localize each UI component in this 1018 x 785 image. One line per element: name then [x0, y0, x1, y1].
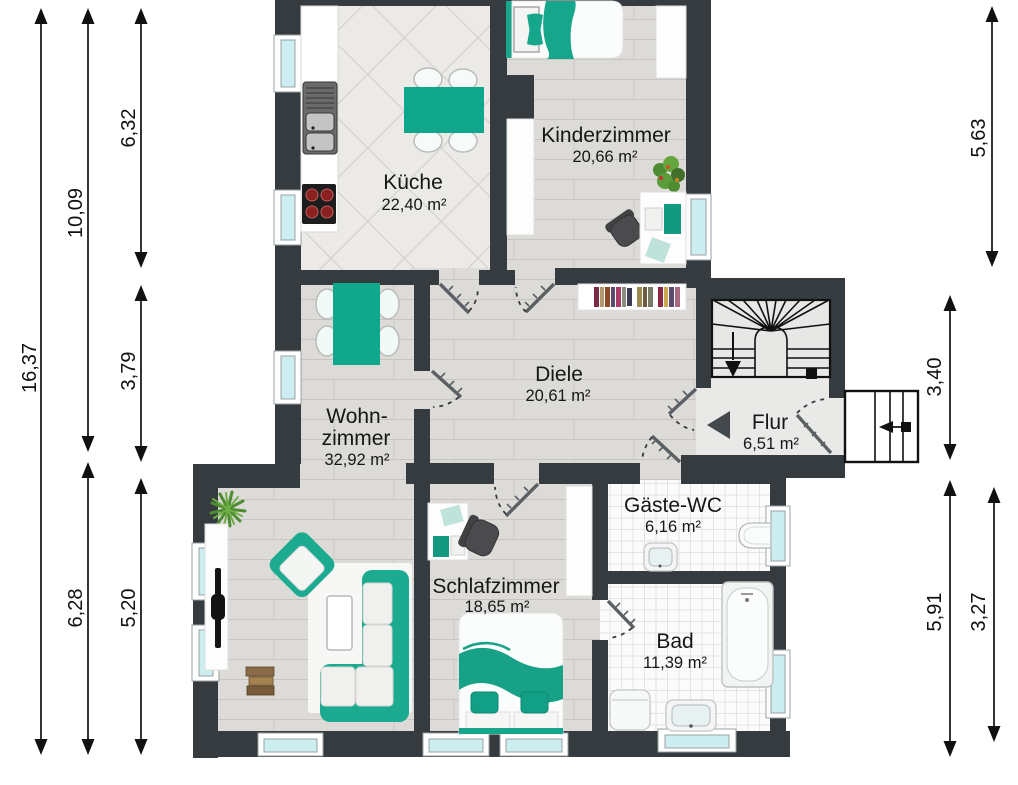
svg-text:6,28: 6,28 — [65, 589, 87, 628]
svg-text:5,20: 5,20 — [118, 589, 140, 628]
svg-text:Wohn-: Wohn- — [326, 405, 387, 428]
svg-text:3,27: 3,27 — [968, 593, 990, 632]
svg-text:22,40 m²: 22,40 m² — [381, 196, 447, 214]
svg-text:Gäste-WC: Gäste-WC — [624, 494, 722, 517]
svg-text:3,40: 3,40 — [924, 358, 946, 397]
svg-text:6,32: 6,32 — [118, 109, 140, 148]
svg-text:5,63: 5,63 — [968, 119, 990, 158]
svg-text:3,79: 3,79 — [118, 352, 140, 391]
svg-text:6,16 m²: 6,16 m² — [645, 518, 701, 536]
svg-text:zimmer: zimmer — [322, 427, 391, 450]
svg-text:Küche: Küche — [383, 171, 443, 194]
svg-text:Bad: Bad — [656, 630, 693, 653]
svg-text:32,92 m²: 32,92 m² — [324, 451, 390, 469]
svg-text:16,37: 16,37 — [19, 343, 41, 393]
svg-text:20,61 m²: 20,61 m² — [525, 387, 591, 405]
svg-text:5,91: 5,91 — [924, 593, 946, 632]
svg-text:Flur: Flur — [752, 411, 788, 434]
svg-text:6,51 m²: 6,51 m² — [743, 435, 799, 453]
svg-text:10,09: 10,09 — [65, 188, 87, 238]
svg-text:Diele: Diele — [535, 363, 583, 386]
svg-text:Kinderzimmer: Kinderzimmer — [541, 124, 671, 147]
svg-text:20,66 m²: 20,66 m² — [572, 148, 638, 166]
svg-text:11,39 m²: 11,39 m² — [643, 654, 707, 672]
svg-text:Schlafzimmer: Schlafzimmer — [432, 575, 559, 598]
svg-text:18,65 m²: 18,65 m² — [464, 598, 530, 616]
